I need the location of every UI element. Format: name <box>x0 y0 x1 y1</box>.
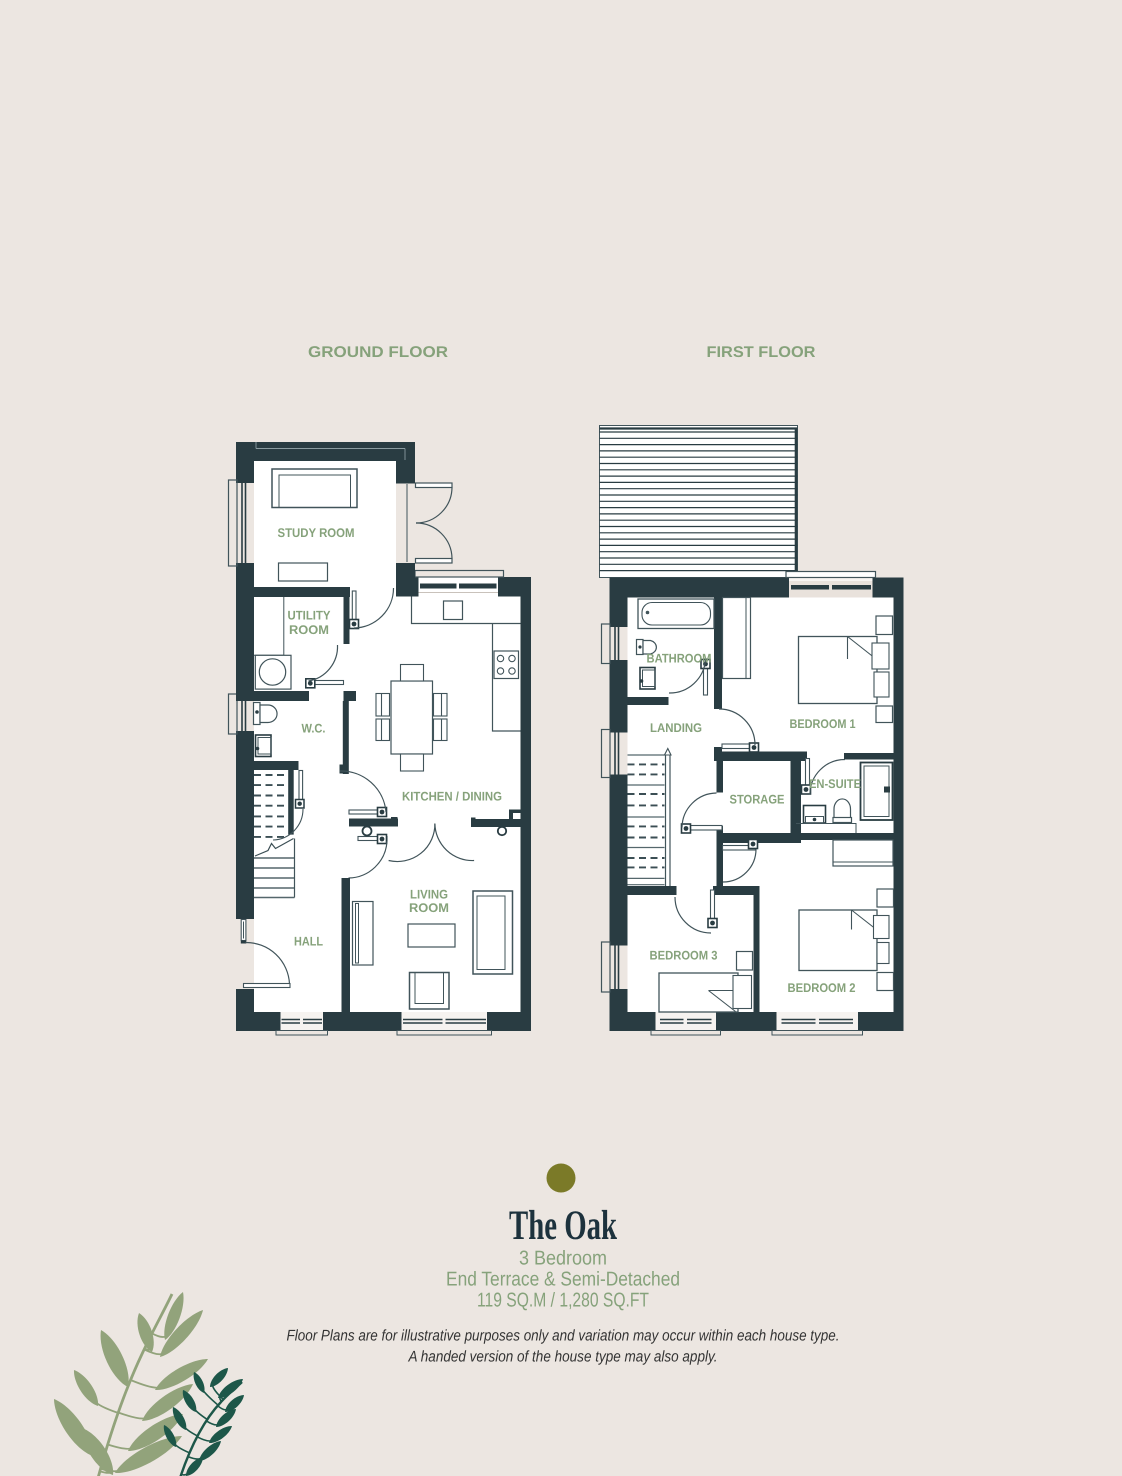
svg-text:ROOM: ROOM <box>289 623 329 637</box>
svg-text:BEDROOM 1: BEDROOM 1 <box>790 717 856 731</box>
svg-text:BATHROOM: BATHROOM <box>647 652 712 666</box>
svg-text:STUDY ROOM: STUDY ROOM <box>278 526 355 540</box>
svg-text:End Terrace & Semi-Detached: End Terrace & Semi-Detached <box>446 1269 680 1291</box>
svg-text:FIRST FLOOR: FIRST FLOOR <box>707 344 816 361</box>
svg-text:LIVING: LIVING <box>410 888 448 902</box>
svg-text:STORAGE: STORAGE <box>730 793 785 807</box>
svg-text:HALL: HALL <box>294 935 323 949</box>
svg-text:The Oak: The Oak <box>509 1203 617 1249</box>
svg-text:119 SQ.M / 1,280 SQ.FT: 119 SQ.M / 1,280 SQ.FT <box>477 1290 649 1312</box>
svg-text:EN-SUITE: EN-SUITE <box>809 777 861 791</box>
svg-text:UTILITY: UTILITY <box>288 609 332 623</box>
svg-text:ROOM: ROOM <box>409 901 449 915</box>
svg-text:3 Bedroom: 3 Bedroom <box>519 1248 607 1270</box>
svg-text:W.C.: W.C. <box>302 722 326 736</box>
svg-text:GROUND FLOOR: GROUND FLOOR <box>308 344 448 361</box>
svg-text:A handed version of the house: A handed version of the house type may a… <box>408 1349 718 1366</box>
svg-text:LANDING: LANDING <box>650 721 702 735</box>
svg-text:KITCHEN / DINING: KITCHEN / DINING <box>402 790 502 804</box>
svg-text:Floor Plans are for illustrati: Floor Plans are for illustrative purpose… <box>287 1328 840 1345</box>
svg-text:BEDROOM 3: BEDROOM 3 <box>650 949 718 963</box>
svg-text:BEDROOM 2: BEDROOM 2 <box>788 981 856 995</box>
